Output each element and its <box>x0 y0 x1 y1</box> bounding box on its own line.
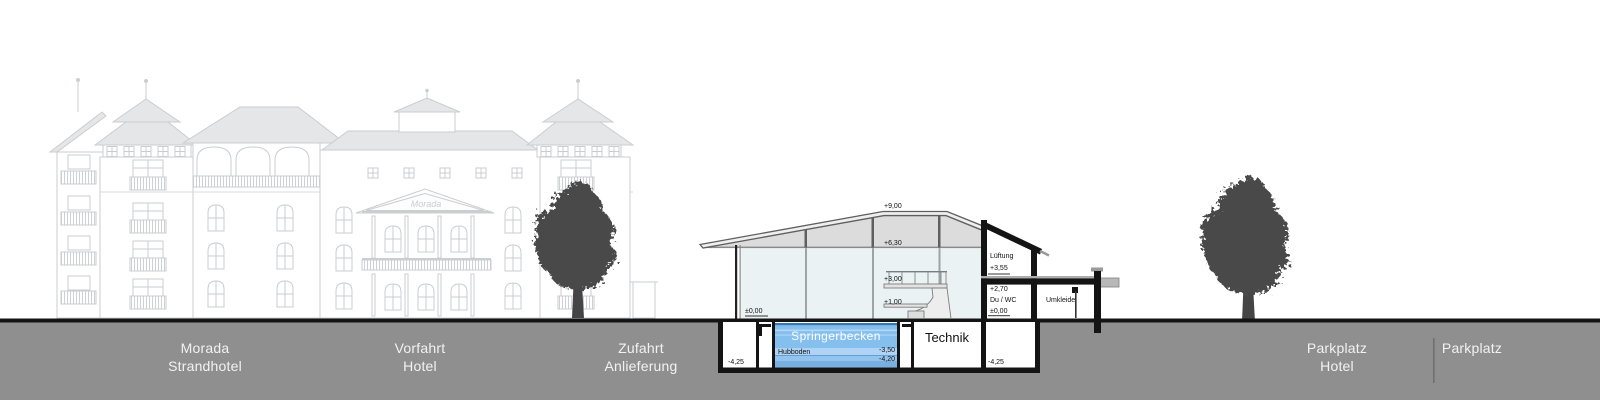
pool-depth-420: -4,20 <box>865 356 895 363</box>
level-roof: +9,00 <box>884 203 902 210</box>
slab-cantilever <box>1100 278 1119 287</box>
site-label-parkplatz: Parkplatz <box>1392 339 1552 357</box>
hubboden-label: Hubboden <box>778 349 810 356</box>
service-block-section <box>981 220 1119 333</box>
pool-name-label: Springerbecken <box>775 330 897 343</box>
site-label-zufahrt-anlieferung: Zufahrt Anlieferung <box>561 339 721 375</box>
level-ceiling: +6,30 <box>884 240 902 247</box>
level-platform: +3,00 <box>884 276 902 283</box>
retaining-wall <box>1094 271 1101 333</box>
room-label-umkleide: Umkleide <box>1046 297 1075 304</box>
site-label-line1: Parkplatz <box>1392 339 1552 357</box>
site-label-morada-strandhotel: Morada Strandhotel <box>125 339 285 375</box>
level-355: +3,55 <box>990 265 1008 272</box>
level-floor-hall: ±0,00 <box>745 308 762 315</box>
level-270: +2,70 <box>990 286 1008 293</box>
site-label-line2: Strandhotel <box>125 357 285 375</box>
level-board: +1,00 <box>884 299 902 306</box>
room-label-du-wc: Du / WC <box>990 297 1016 304</box>
room-label-lueftung: Lüftung <box>990 253 1013 260</box>
level-basement-right: -4,25 <box>988 359 1004 366</box>
level-floor-duwc: ±0,00 <box>990 308 1007 315</box>
pool-hall-section <box>700 212 983 319</box>
tree-right <box>1202 177 1289 322</box>
ground-line <box>0 319 1600 323</box>
technik-room-label: Technik <box>912 331 982 345</box>
pool-depth-350: -3,50 <box>865 347 895 354</box>
site-label-vorfahrt-hotel: Vorfahrt Hotel <box>340 339 500 375</box>
site-label-line1: Zufahrt <box>561 339 721 357</box>
architectural-section-drawing: Morada <box>0 0 1600 400</box>
site-label-line1: Vorfahrt <box>340 339 500 357</box>
level-basement-left: -4,25 <box>728 359 744 366</box>
site-label-line2: Anlieferung <box>561 357 721 375</box>
site-label-line1: Morada <box>125 339 285 357</box>
site-label-line2: Hotel <box>1257 357 1417 375</box>
hotel-logo-script: Morada <box>411 199 442 209</box>
site-label-line2: Hotel <box>340 357 500 375</box>
